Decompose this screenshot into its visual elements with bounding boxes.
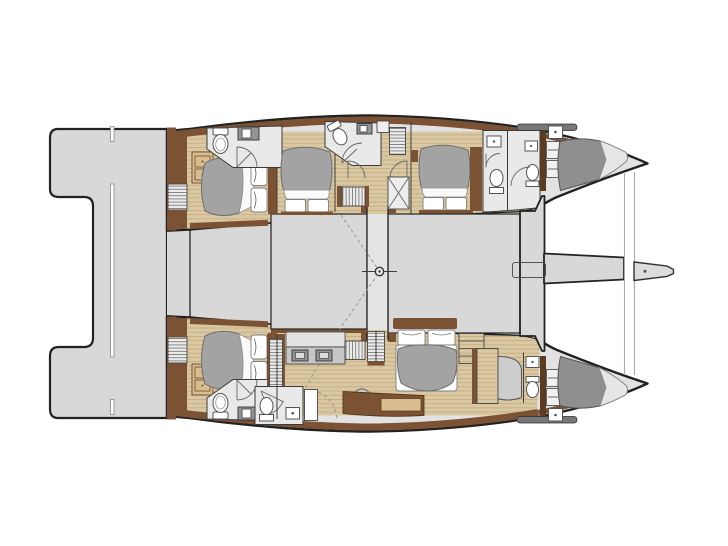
pillow-icon bbox=[446, 198, 467, 211]
transom-seam-bottom bbox=[111, 400, 115, 415]
pillow-icon bbox=[251, 188, 267, 212]
pillow-icon bbox=[423, 198, 444, 211]
stairs-icon bbox=[368, 332, 385, 366]
forward-bathroom-port bbox=[483, 131, 540, 213]
pillow-icon bbox=[398, 330, 425, 345]
crossbeam-icon bbox=[544, 254, 624, 284]
catamaran-floor-plan bbox=[0, 0, 728, 546]
vanity-double-sink-icon bbox=[286, 332, 345, 364]
aft-deck-seam bbox=[111, 184, 115, 357]
deck-hatch-icon bbox=[517, 124, 577, 131]
wardrobe-louver-icon bbox=[390, 128, 406, 155]
seat-icon bbox=[498, 357, 522, 401]
double-bed-icon bbox=[393, 318, 457, 391]
wardrobe-louver-icon bbox=[345, 341, 365, 360]
pillow-icon bbox=[308, 200, 329, 213]
foredeck-platform bbox=[520, 196, 545, 351]
toilet-icon bbox=[260, 398, 274, 422]
sink-icon bbox=[238, 127, 259, 140]
sink-icon bbox=[525, 141, 538, 151]
stairs-icon bbox=[342, 187, 365, 206]
floor-plan-canvas bbox=[0, 0, 728, 546]
bridgedeck-forward-room bbox=[388, 214, 520, 333]
door-leaf-icon bbox=[305, 390, 318, 421]
cabinet-icon bbox=[377, 121, 389, 133]
toilet-icon bbox=[490, 170, 504, 194]
stairs-icon bbox=[168, 184, 187, 210]
owner-shower-room bbox=[255, 387, 303, 425]
sink-icon bbox=[487, 136, 501, 147]
sink-icon bbox=[549, 126, 563, 139]
shower-stall-icon bbox=[388, 177, 409, 209]
sink-icon bbox=[286, 408, 300, 420]
transom-seam-top bbox=[111, 127, 115, 142]
wardrobe-louver-icon bbox=[267, 334, 285, 391]
pillow-icon bbox=[428, 330, 455, 345]
sink-icon bbox=[526, 357, 539, 368]
pillow-icon bbox=[285, 200, 306, 213]
hull-side-bench bbox=[343, 392, 424, 417]
toilet-icon bbox=[213, 128, 228, 154]
toilet-icon bbox=[526, 377, 539, 398]
toilet-icon bbox=[526, 165, 539, 187]
sink-icon bbox=[357, 124, 372, 135]
